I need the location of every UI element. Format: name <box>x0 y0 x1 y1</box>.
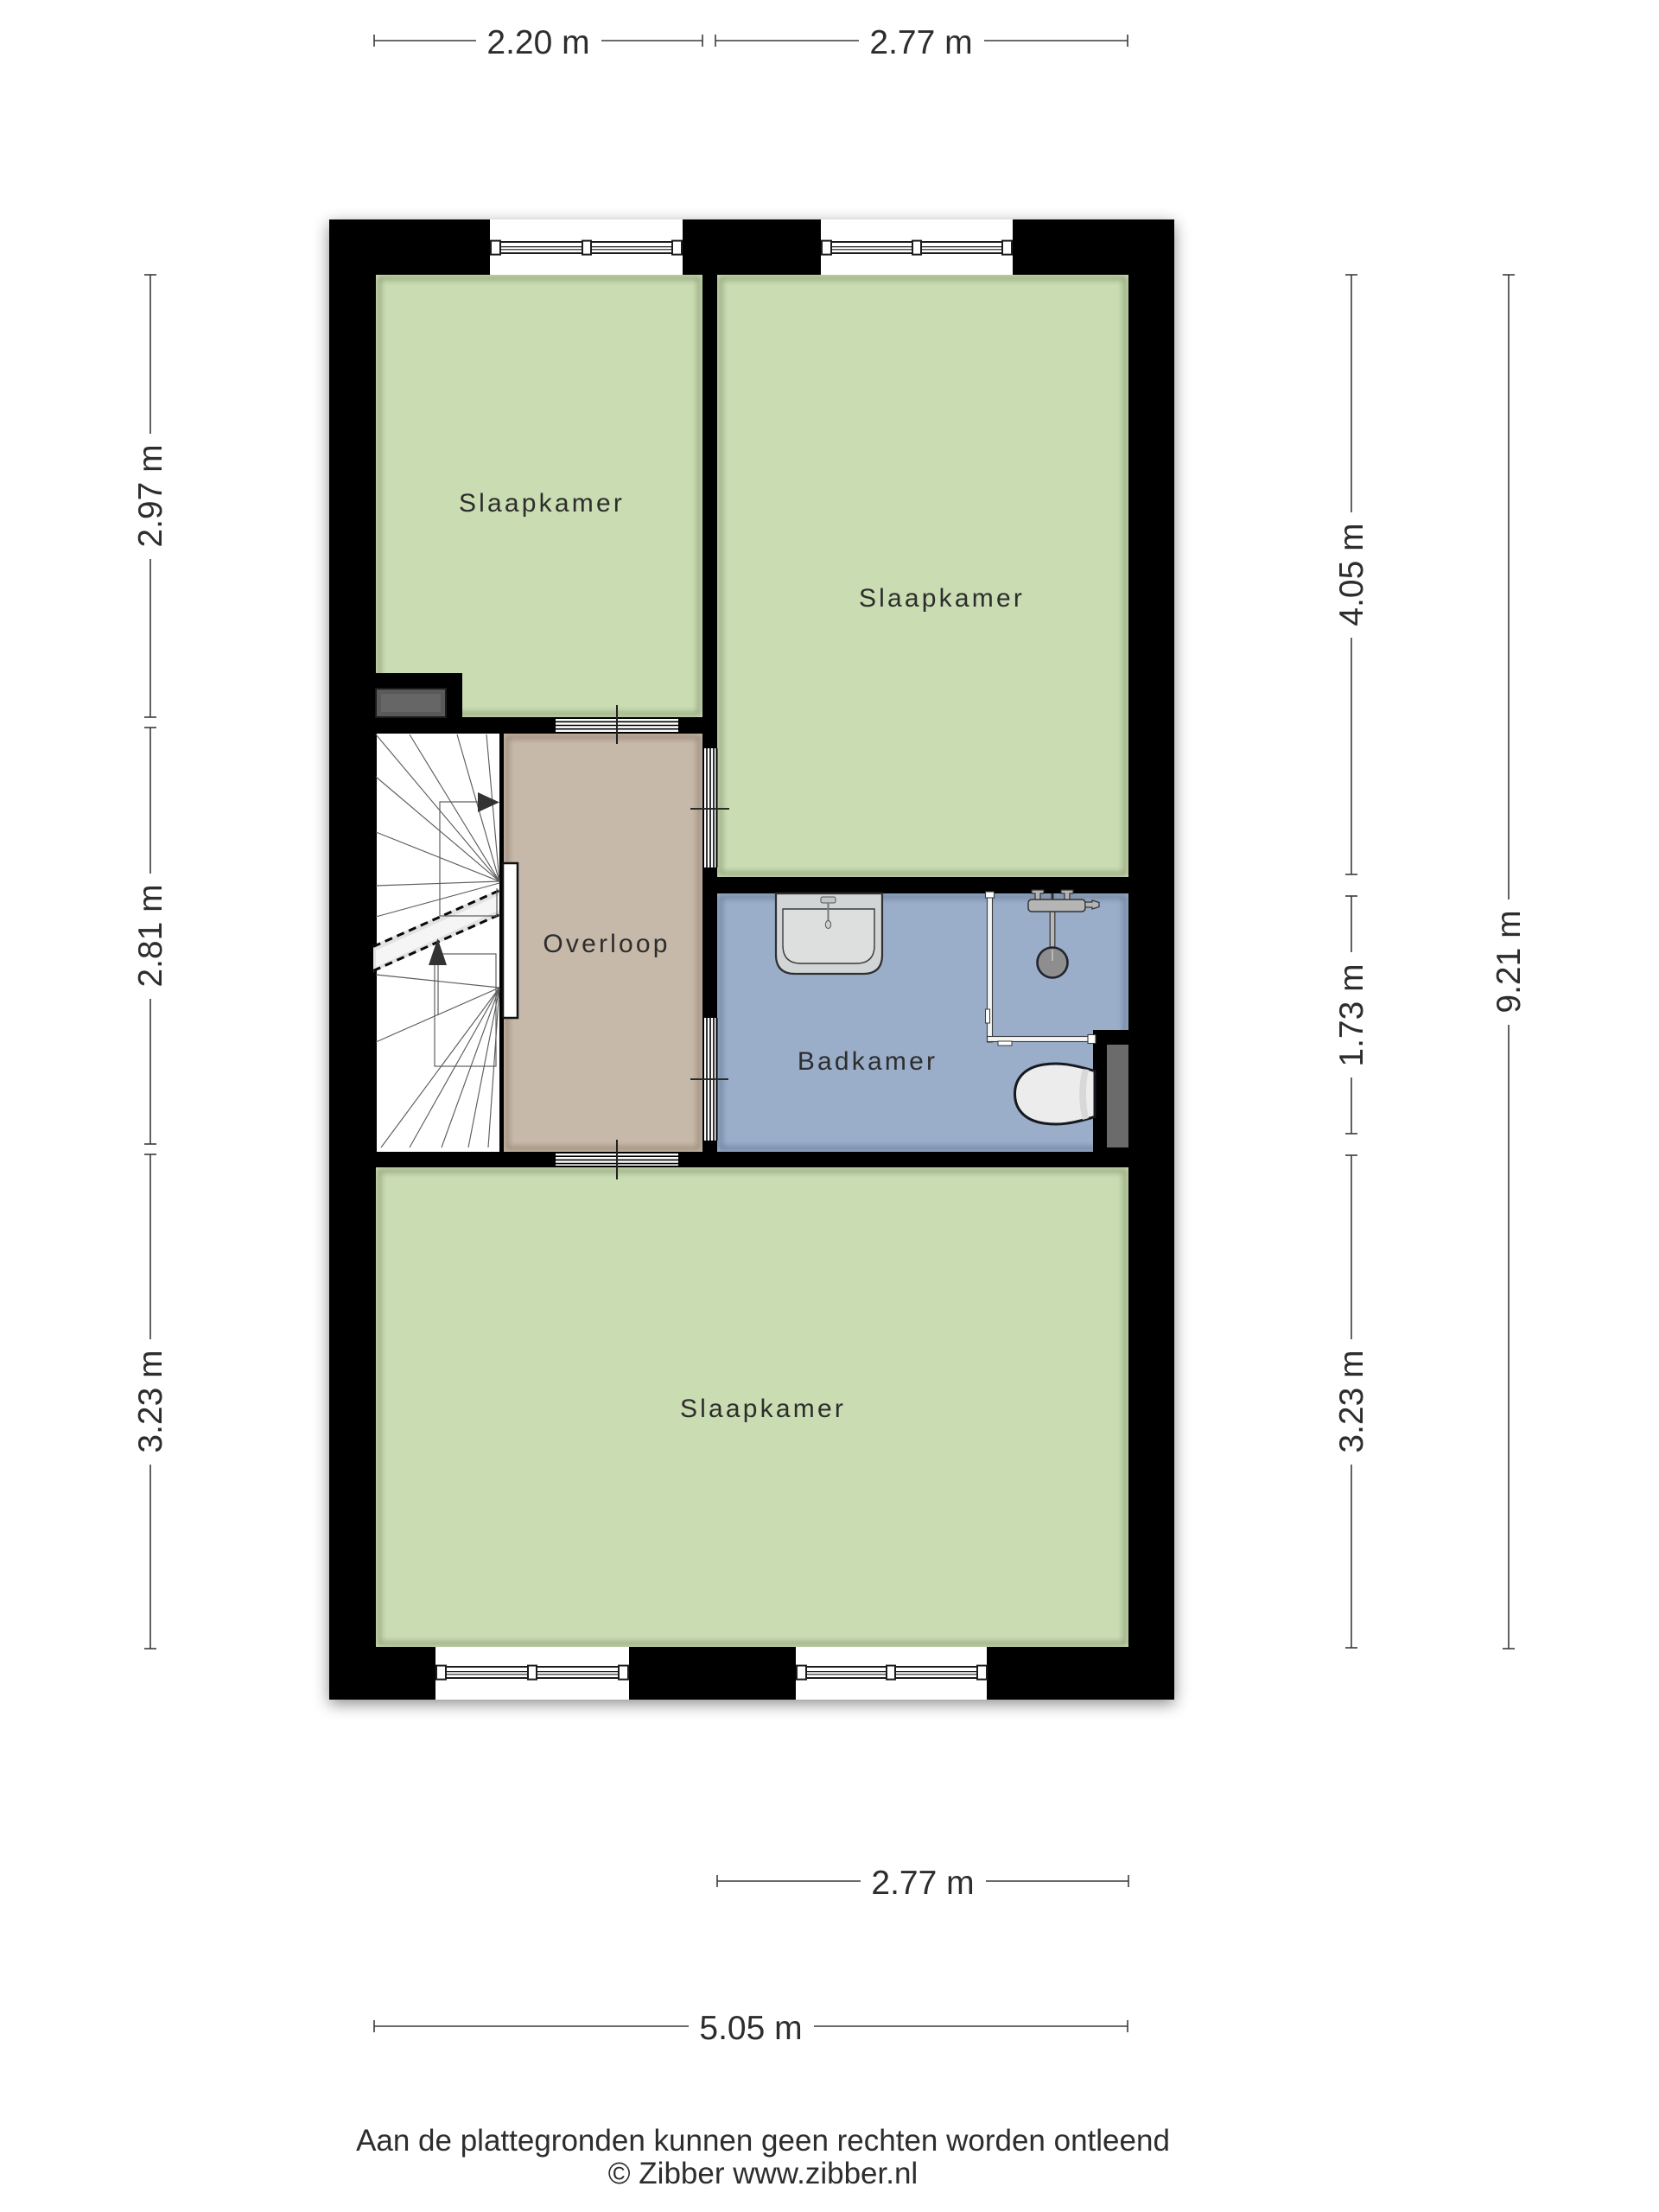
svg-text:5.05 m: 5.05 m <box>699 2010 802 2047</box>
svg-text:2.77 m: 2.77 m <box>869 24 972 61</box>
svg-text:2.81 m: 2.81 m <box>132 884 169 987</box>
svg-text:Slaapkamer: Slaapkamer <box>459 489 625 518</box>
svg-text:Badkamer: Badkamer <box>798 1047 938 1076</box>
svg-text:2.97 m: 2.97 m <box>132 444 169 547</box>
svg-text:3.23 m: 3.23 m <box>1333 1350 1370 1452</box>
svg-text:9.21 m: 9.21 m <box>1491 910 1528 1013</box>
svg-text:© Zibber www.zibber.nl: © Zibber www.zibber.nl <box>608 2157 918 2190</box>
svg-text:3.23 m: 3.23 m <box>132 1350 169 1452</box>
svg-text:2.20 m: 2.20 m <box>486 24 589 61</box>
svg-text:2.77 m: 2.77 m <box>871 1865 974 1902</box>
svg-text:Aan de plattegronden kunnen ge: Aan de plattegronden kunnen geen rechten… <box>356 2124 1170 2158</box>
svg-text:1.73 m: 1.73 m <box>1333 963 1370 1066</box>
svg-text:4.05 m: 4.05 m <box>1333 523 1370 626</box>
svg-text:Slaapkamer: Slaapkamer <box>859 584 1025 613</box>
svg-text:Overloop: Overloop <box>543 930 670 958</box>
svg-text:Slaapkamer: Slaapkamer <box>680 1395 846 1423</box>
